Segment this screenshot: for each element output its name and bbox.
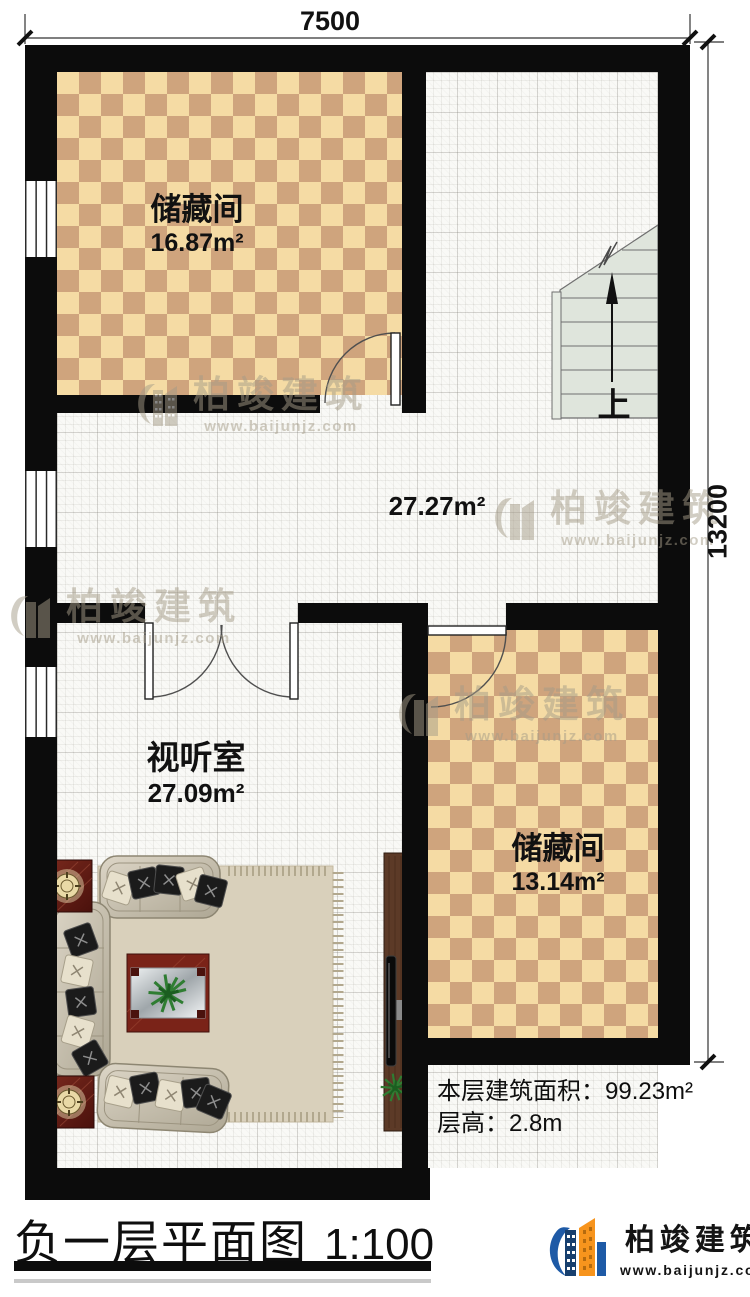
brand-website: www.baijunjz.com <box>620 1263 750 1277</box>
room-label-hall: 27.27m² <box>377 492 497 521</box>
brand-name: 柏竣建筑 <box>625 1226 750 1256</box>
note-floor-height: 层高：2.8m <box>437 1103 562 1138</box>
room-area: 27.27m² <box>377 492 497 521</box>
dimension-height: 13200 <box>703 477 734 567</box>
room-area: 27.09m² <box>136 779 256 808</box>
room-name: 储藏间 <box>498 832 618 866</box>
floorplan-canvas: 储藏间 16.87m² 27.27m² 视听室 27.09m² 储藏间 13.1… <box>0 0 750 1297</box>
room-label-storage1: 储藏间 16.87m² <box>137 193 257 258</box>
brand-logo-icon <box>548 1214 614 1288</box>
room-area: 13.14m² <box>498 869 618 897</box>
title-underline-thick <box>14 1261 431 1271</box>
room-name: 视听室 <box>136 740 256 776</box>
room-label-storage2: 储藏间 13.14m² <box>498 832 618 897</box>
note-floor-area: 本层建筑面积：99.23m² <box>437 1071 693 1106</box>
room-name: 储藏间 <box>137 193 257 227</box>
door-storage1 <box>325 333 400 405</box>
room-area: 16.87m² <box>137 230 257 258</box>
stairs-direction-label: 上 <box>594 378 634 426</box>
brand-logo: 柏竣建筑 www.baijunjz.com <box>548 1214 750 1288</box>
title-underline-thin <box>14 1279 431 1283</box>
door-storage2 <box>428 626 506 707</box>
dimension-width: 7500 <box>295 6 365 37</box>
room-label-av: 视听室 27.09m² <box>136 740 256 808</box>
door-av-double <box>145 623 298 699</box>
